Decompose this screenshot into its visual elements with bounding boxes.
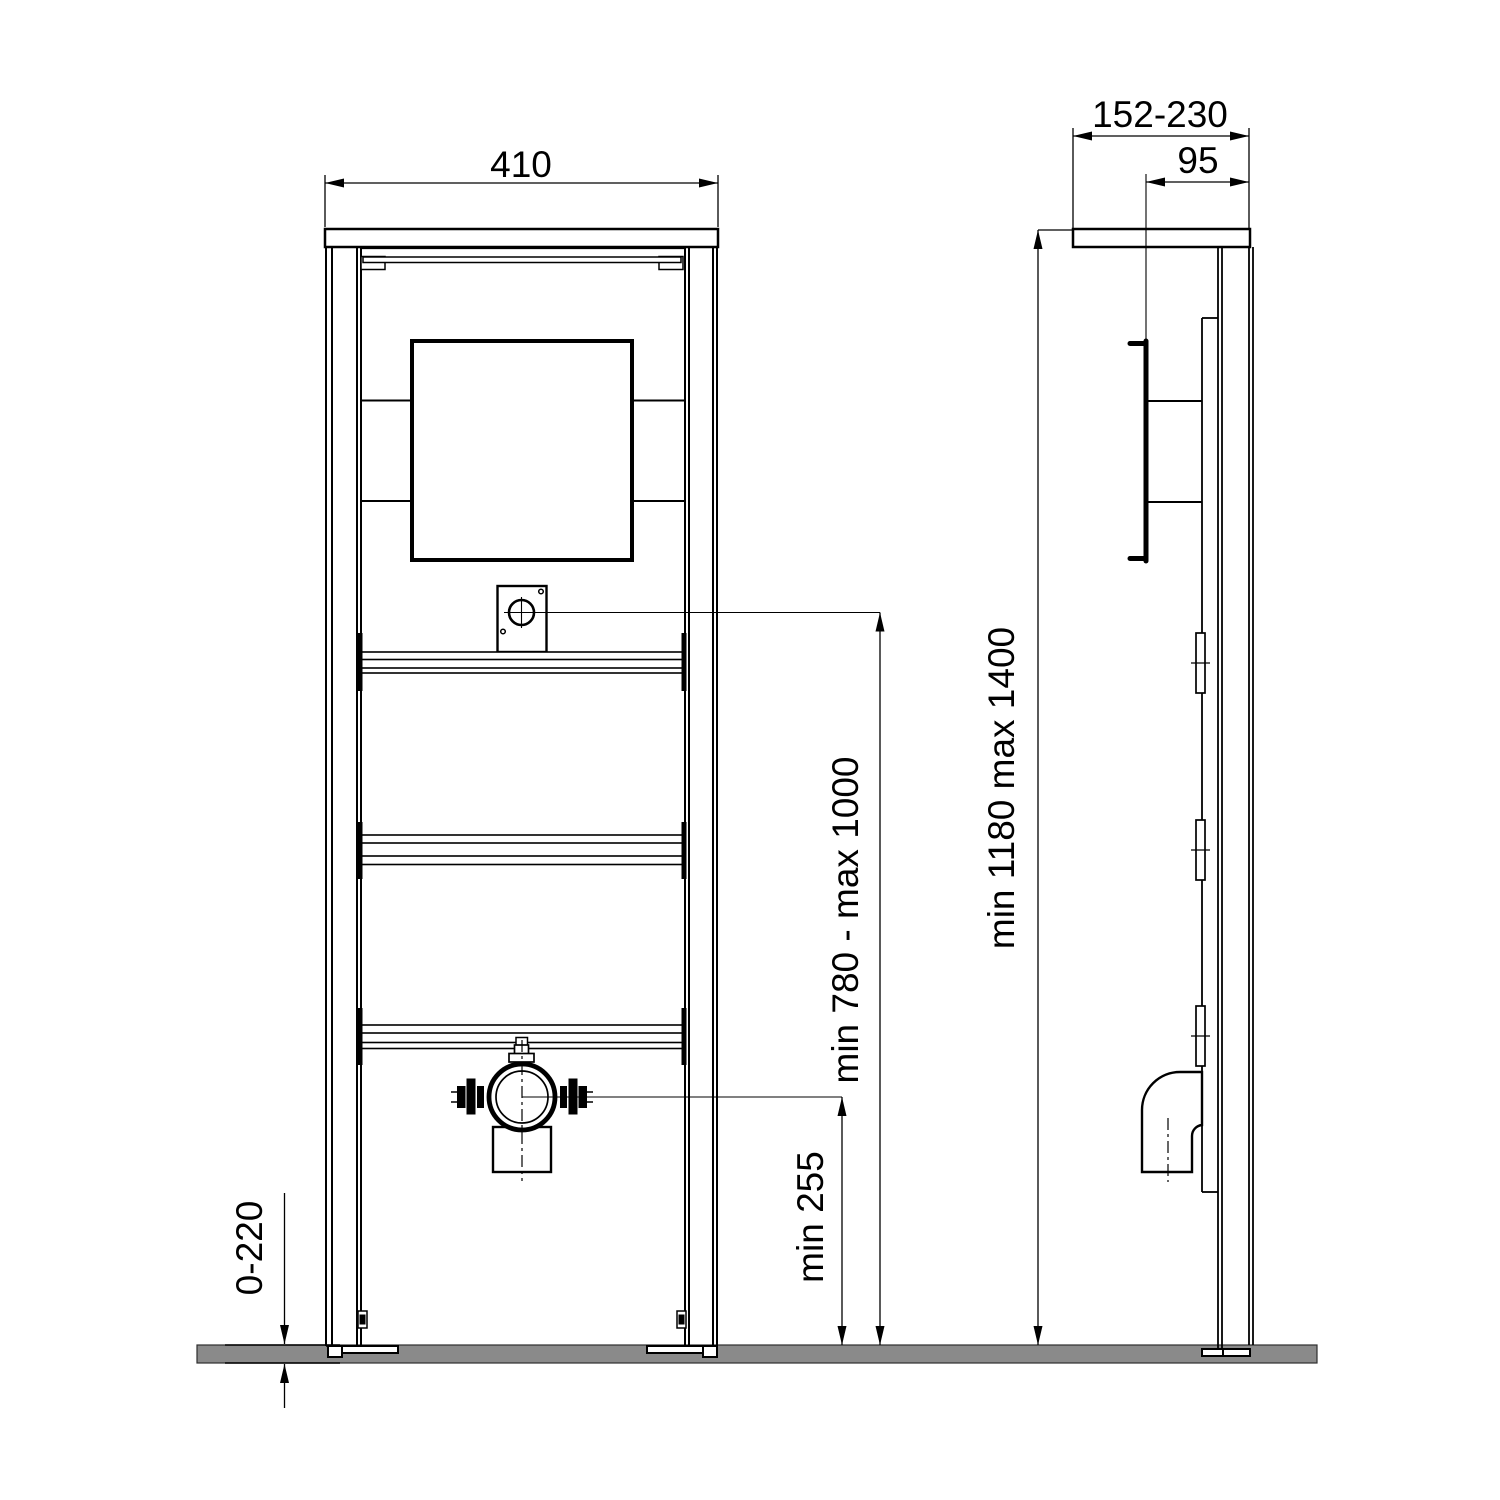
dim-label-floor-buildup: 0-220 [229,1201,270,1296]
actuator-bracket [1130,341,1146,561]
arrowhead [1034,1326,1043,1345]
dim-label-frame-width: 410 [490,144,552,185]
arrowhead [876,613,885,632]
frame-leg-right [685,247,717,1346]
arrowhead [838,1326,847,1345]
arrowhead [280,1364,289,1383]
crossbar-level-2 [361,835,685,865]
side-top-rail [1073,229,1250,247]
crossbar-level-1 [361,652,685,673]
clamp-bolt-left [457,1079,484,1115]
arrowhead [325,179,344,188]
wall-anchor-clip [682,822,687,879]
side-foot [1202,1349,1250,1356]
frame-leg-left [326,247,361,1346]
waste-elbow [1142,1072,1202,1172]
wall-anchor-clip [682,633,687,691]
dim-label-frame-height: min 1180 max 1400 [981,627,1022,949]
dim-frame-width: 410 [325,144,718,227]
side-frame-leg [1218,247,1222,1350]
waste-pipe-clamp [451,1038,593,1182]
arrowhead [1073,132,1092,141]
arrowhead [1146,178,1165,187]
arrowhead [838,1097,847,1116]
front-view [325,229,718,1357]
arrowhead [1230,132,1249,141]
wall-anchor-clip [358,1008,363,1065]
dim-depth-range: 152-230 [1073,94,1249,228]
wall-anchor-clip [682,1008,687,1065]
installation-diagram: 410 152-230 95 min 1180 max 1400 [0,0,1500,1500]
dimension-annotations: 410 152-230 95 min 1180 max 1400 [225,94,1249,1408]
dim-label-flush-plate-height: min 780 - max 1000 [825,756,866,1083]
wall-anchor-clip [358,633,363,691]
arrowhead [876,1326,885,1345]
foot-lock-bolt-right [677,1311,686,1328]
side-view [1073,229,1253,1356]
technical-drawing-page: 410 152-230 95 min 1180 max 1400 [0,0,1500,1500]
actuator-opening-edges [1147,401,1202,502]
dim-floor-buildup: 0-220 [225,1193,340,1408]
dim-label-depth-range: 152-230 [1092,94,1228,135]
dim-frame-height: min 1180 max 1400 [981,230,1072,1345]
tank-hanger-bar [361,257,683,270]
dim-label-outlet-height: min 255 [790,1151,831,1283]
wall-anchor-clip [358,822,363,879]
top-rail [325,229,718,247]
arrowhead [1230,178,1249,187]
foot-lock-bolt-left [358,1311,367,1328]
side-back-rail [1249,247,1253,1345]
arrowhead [1034,230,1043,249]
arrowhead [699,179,718,188]
arrowhead [280,1325,289,1344]
side-anchor-clips [1191,633,1210,1066]
dim-label-actuator-depth: 95 [1177,140,1218,181]
access-opening [412,341,632,560]
flush-pipe-plate [498,586,547,652]
